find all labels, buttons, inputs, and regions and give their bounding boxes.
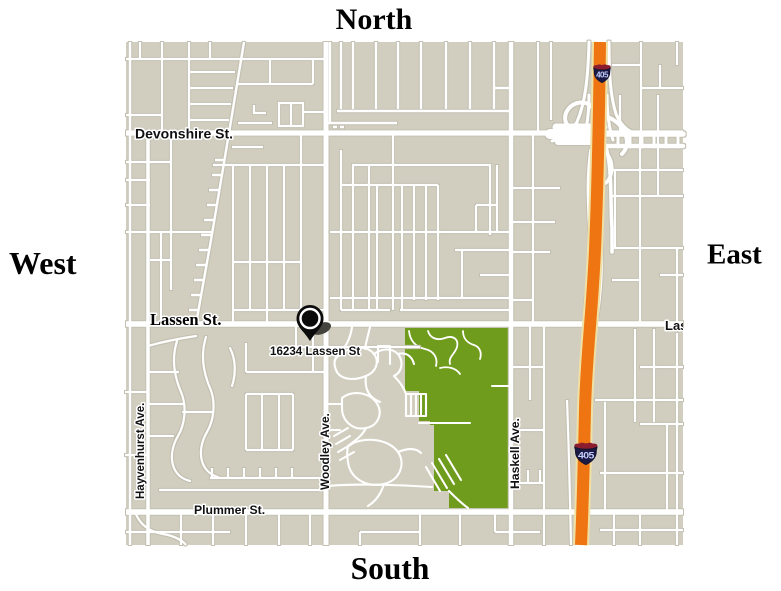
- svg-text:Woodley Ave.: Woodley Ave.: [318, 413, 332, 490]
- svg-text:East: East: [707, 239, 762, 271]
- svg-text:Haskell Ave.: Haskell Ave.: [508, 418, 522, 489]
- svg-text:North: North: [336, 3, 413, 36]
- svg-text:West: West: [9, 245, 77, 281]
- svg-text:South: South: [351, 551, 430, 586]
- svg-text:16234 Lassen St: 16234 Lassen St: [270, 345, 360, 358]
- svg-text:Hayvenhurst Ave.: Hayvenhurst Ave.: [135, 403, 147, 499]
- svg-text:405: 405: [578, 451, 595, 461]
- svg-text:Devonshire St.: Devonshire St.: [135, 126, 233, 142]
- svg-text:Plummer St.: Plummer St.: [194, 503, 265, 517]
- svg-text:Lassen St.: Lassen St.: [150, 310, 222, 329]
- svg-text:405: 405: [596, 71, 609, 80]
